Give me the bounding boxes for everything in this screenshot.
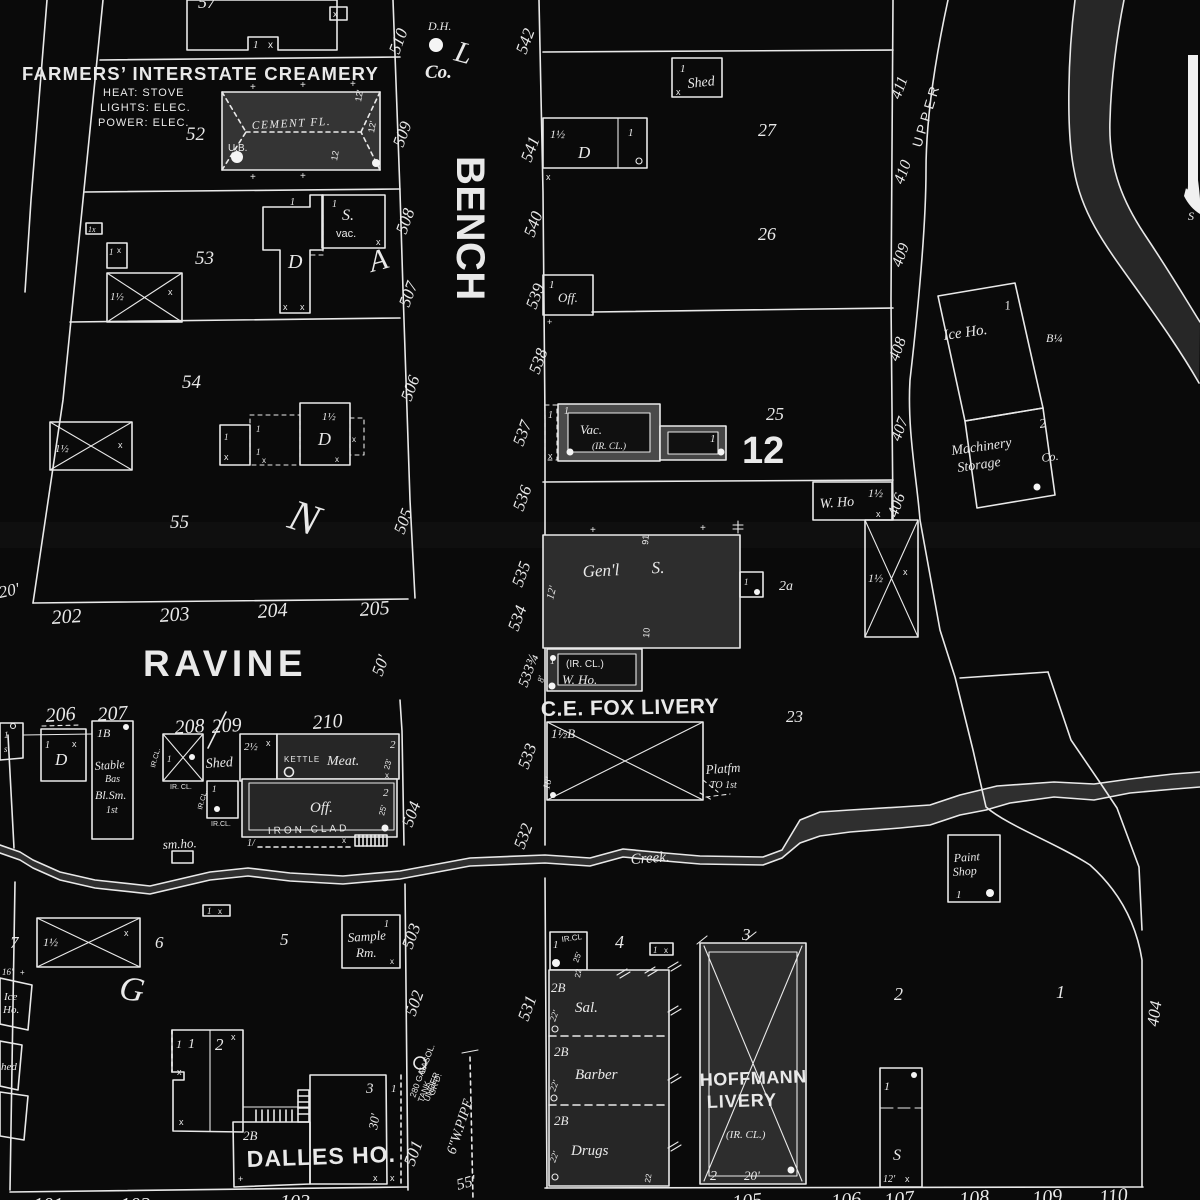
svg-text:1: 1 bbox=[109, 247, 114, 257]
svg-text:FARMERS’ INTERSTATE CREAMERY: FARMERS’ INTERSTATE CREAMERY bbox=[22, 63, 379, 84]
svg-text:5: 5 bbox=[280, 930, 289, 949]
svg-text:POWER: ELEC.: POWER: ELEC. bbox=[98, 117, 189, 129]
svg-text:1½: 1½ bbox=[550, 127, 565, 141]
svg-text:206: 206 bbox=[45, 703, 76, 727]
svg-text:HOFFMANN: HOFFMANN bbox=[699, 1066, 807, 1090]
svg-text:109: 109 bbox=[1031, 1185, 1063, 1200]
svg-text:2: 2 bbox=[390, 739, 396, 751]
svg-text:Sample: Sample bbox=[347, 927, 386, 945]
svg-text:+: + bbox=[700, 523, 706, 534]
svg-text:1: 1 bbox=[224, 432, 229, 442]
svg-text:Sal.: Sal. bbox=[575, 1000, 598, 1016]
svg-text:202: 202 bbox=[51, 605, 82, 629]
svg-text:Meat.: Meat. bbox=[326, 754, 359, 769]
svg-text:D: D bbox=[287, 251, 303, 273]
svg-text:x: x bbox=[664, 946, 668, 955]
svg-text:108: 108 bbox=[958, 1186, 990, 1200]
svg-text:3: 3 bbox=[365, 1081, 374, 1097]
svg-text:Co.: Co. bbox=[1040, 449, 1059, 465]
svg-text:404: 404 bbox=[1143, 999, 1165, 1027]
svg-text:204: 204 bbox=[257, 599, 288, 623]
svg-text:30': 30' bbox=[365, 1112, 383, 1131]
svg-text:x: x bbox=[676, 87, 681, 97]
svg-text:57: 57 bbox=[198, 0, 217, 12]
svg-text:1/: 1/ bbox=[247, 838, 256, 849]
svg-text:x: x bbox=[352, 435, 356, 444]
svg-text:55: 55 bbox=[170, 512, 189, 533]
svg-text:1: 1 bbox=[391, 1083, 397, 1095]
svg-text:+: + bbox=[300, 171, 306, 182]
svg-text:1: 1 bbox=[256, 447, 261, 457]
svg-text:x: x bbox=[266, 738, 271, 748]
svg-text:1½: 1½ bbox=[868, 571, 883, 585]
svg-text:+: + bbox=[350, 79, 356, 90]
svg-text:1: 1 bbox=[4, 730, 9, 740]
svg-text:x: x bbox=[905, 1174, 910, 1184]
svg-text:2B: 2B bbox=[551, 980, 566, 995]
svg-text:x: x bbox=[72, 739, 77, 749]
svg-text:LIGHTS: ELEC.: LIGHTS: ELEC. bbox=[100, 102, 191, 114]
svg-text:Rm.: Rm. bbox=[355, 945, 377, 960]
svg-text:101: 101 bbox=[33, 1194, 63, 1200]
svg-text:1: 1 bbox=[628, 127, 634, 139]
svg-text:x: x bbox=[283, 302, 288, 312]
svg-text:W. Ho: W. Ho bbox=[819, 495, 854, 512]
svg-text:1: 1 bbox=[710, 433, 716, 445]
svg-text:x: x bbox=[117, 246, 121, 255]
svg-text:x: x bbox=[342, 836, 346, 845]
svg-text:1: 1 bbox=[176, 1037, 182, 1051]
svg-text:+: + bbox=[300, 80, 306, 91]
svg-text:x: x bbox=[333, 9, 338, 19]
svg-text:1: 1 bbox=[553, 939, 559, 951]
svg-text:110: 110 bbox=[1098, 1184, 1129, 1200]
svg-text:107: 107 bbox=[883, 1187, 916, 1200]
svg-text:S: S bbox=[1188, 209, 1194, 223]
svg-text:12': 12' bbox=[883, 1174, 896, 1185]
svg-text:53: 53 bbox=[195, 248, 214, 269]
svg-text:1: 1 bbox=[207, 906, 212, 916]
svg-text:208: 208 bbox=[174, 715, 205, 739]
svg-text:Paint: Paint bbox=[952, 849, 981, 865]
svg-text:LIVERY: LIVERY bbox=[706, 1090, 777, 1112]
svg-text:+: + bbox=[238, 1174, 243, 1184]
svg-text:1: 1 bbox=[332, 199, 337, 210]
svg-text:W. Ho.: W. Ho. bbox=[562, 672, 597, 687]
svg-text:x: x bbox=[231, 1032, 236, 1042]
svg-text:x: x bbox=[177, 1067, 182, 1077]
svg-text:Co.: Co. bbox=[425, 62, 452, 83]
svg-text:Barber: Barber bbox=[575, 1067, 618, 1083]
svg-text:1B: 1B bbox=[97, 726, 111, 740]
svg-text:DALLES HO.: DALLES HO. bbox=[246, 1141, 396, 1172]
svg-text:+: + bbox=[590, 525, 596, 536]
svg-text:vac.: vac. bbox=[336, 228, 356, 240]
svg-text:x: x bbox=[903, 567, 908, 577]
svg-text:S.: S. bbox=[342, 207, 354, 224]
svg-text:s: s bbox=[4, 744, 8, 754]
svg-text:Vac.: Vac. bbox=[580, 422, 602, 437]
svg-text:23: 23 bbox=[786, 707, 803, 726]
svg-text:x: x bbox=[218, 907, 222, 916]
svg-text:x: x bbox=[168, 287, 173, 297]
svg-text:1: 1 bbox=[256, 424, 261, 434]
svg-text:2B: 2B bbox=[554, 1113, 569, 1128]
svg-text:1: 1 bbox=[548, 410, 553, 421]
svg-text:12: 12 bbox=[742, 430, 784, 472]
svg-text:1: 1 bbox=[167, 754, 172, 764]
svg-text:1st: 1st bbox=[106, 805, 118, 816]
svg-text:D: D bbox=[317, 429, 331, 449]
svg-text:Off.: Off. bbox=[310, 800, 333, 816]
svg-text:12': 12' bbox=[366, 120, 378, 134]
svg-text:10: 10 bbox=[641, 627, 652, 638]
svg-text:x: x bbox=[548, 451, 553, 461]
svg-text:1: 1 bbox=[45, 740, 50, 751]
svg-text:1½: 1½ bbox=[868, 486, 883, 500]
svg-text:1: 1 bbox=[653, 945, 658, 955]
svg-text:x: x bbox=[118, 440, 123, 450]
svg-text:+: + bbox=[20, 968, 25, 977]
svg-text:1½B: 1½B bbox=[551, 726, 575, 741]
svg-text:IR. CL.: IR. CL. bbox=[170, 784, 192, 791]
svg-text:1: 1 bbox=[956, 889, 962, 901]
svg-text:91: 91 bbox=[640, 534, 651, 545]
svg-text:1: 1 bbox=[884, 1079, 890, 1093]
svg-text:KETTLE: KETTLE bbox=[284, 755, 320, 764]
svg-text:205: 205 bbox=[359, 597, 390, 621]
svg-text:1½: 1½ bbox=[322, 411, 336, 423]
svg-text:RAVINE: RAVINE bbox=[143, 643, 307, 684]
svg-text:Shed: Shed bbox=[687, 74, 717, 92]
svg-text:2a: 2a bbox=[779, 579, 793, 594]
svg-text:1: 1 bbox=[212, 784, 217, 794]
svg-text:D: D bbox=[577, 143, 591, 162]
svg-text:203: 203 bbox=[159, 603, 190, 627]
svg-text:103: 103 bbox=[280, 1191, 310, 1200]
svg-text:210: 210 bbox=[312, 710, 343, 734]
svg-text:x: x bbox=[373, 1173, 378, 1183]
svg-text:TO 1st: TO 1st bbox=[710, 780, 737, 791]
svg-text:207: 207 bbox=[97, 702, 129, 726]
svg-text:Off.: Off. bbox=[558, 290, 578, 305]
svg-text:x: x bbox=[124, 928, 129, 938]
svg-text:1: 1 bbox=[384, 919, 389, 930]
svg-text:+: + bbox=[250, 172, 256, 183]
svg-text:D: D bbox=[54, 750, 68, 769]
svg-text:27: 27 bbox=[758, 120, 777, 140]
svg-text:x: x bbox=[546, 172, 551, 182]
svg-text:Platfm: Platfm bbox=[704, 760, 741, 777]
svg-text:x: x bbox=[262, 456, 266, 465]
svg-text:Shed: Shed bbox=[205, 755, 234, 772]
svg-text:1: 1 bbox=[290, 197, 295, 208]
svg-text:1: 1 bbox=[744, 577, 749, 587]
svg-text:1: 1 bbox=[549, 279, 555, 291]
svg-text:B¼: B¼ bbox=[1046, 331, 1062, 345]
svg-text:2B: 2B bbox=[554, 1044, 569, 1059]
svg-text:x: x bbox=[390, 1173, 395, 1183]
svg-text:1½: 1½ bbox=[55, 443, 69, 455]
svg-text:Bl.Sm.: Bl.Sm. bbox=[95, 788, 126, 802]
svg-text:102: 102 bbox=[120, 1194, 150, 1200]
svg-text:Creek.: Creek. bbox=[630, 849, 670, 868]
svg-text:sm.ho.: sm.ho. bbox=[162, 835, 197, 852]
svg-text:(IR. CL.): (IR. CL.) bbox=[592, 441, 626, 452]
svg-text:+: + bbox=[250, 82, 256, 93]
svg-text:x: x bbox=[300, 302, 305, 312]
svg-text:26: 26 bbox=[758, 224, 776, 244]
svg-text:2B: 2B bbox=[243, 1128, 258, 1143]
svg-text:3: 3 bbox=[741, 925, 751, 944]
svg-text:12: 12 bbox=[329, 150, 341, 162]
svg-text:105: 105 bbox=[731, 1189, 763, 1200]
svg-text:Bas: Bas bbox=[105, 774, 120, 785]
svg-text:BENCH: BENCH bbox=[448, 156, 492, 301]
svg-text:(IR. CL.): (IR. CL.) bbox=[566, 659, 604, 670]
svg-text:Stable: Stable bbox=[94, 757, 126, 773]
svg-text:hed: hed bbox=[1, 1061, 17, 1073]
svg-text:1½: 1½ bbox=[110, 291, 124, 303]
svg-text:HEAT: STOVE: HEAT: STOVE bbox=[103, 87, 185, 99]
svg-text:2: 2 bbox=[710, 1169, 717, 1184]
svg-text:4: 4 bbox=[615, 932, 624, 952]
svg-text:12': 12' bbox=[353, 89, 365, 103]
svg-text:1: 1 bbox=[680, 63, 686, 75]
svg-text:2½: 2½ bbox=[244, 741, 258, 753]
svg-text:Ice: Ice bbox=[3, 991, 18, 1003]
svg-text:x: x bbox=[179, 1117, 184, 1127]
svg-text:25: 25 bbox=[766, 404, 784, 424]
svg-text:2: 2 bbox=[894, 984, 903, 1004]
svg-text:16': 16' bbox=[2, 967, 14, 977]
svg-text:Ho.: Ho. bbox=[2, 1004, 19, 1016]
svg-text:54: 54 bbox=[182, 372, 202, 393]
svg-text:IR.CL.: IR.CL. bbox=[211, 821, 231, 828]
svg-text:52: 52 bbox=[186, 124, 206, 145]
svg-text:1: 1 bbox=[1056, 982, 1065, 1002]
svg-text:x: x bbox=[876, 509, 881, 519]
svg-text:1: 1 bbox=[253, 39, 259, 51]
svg-text:S: S bbox=[893, 1147, 901, 1164]
svg-text:+: + bbox=[547, 317, 552, 327]
svg-text:x: x bbox=[224, 452, 229, 462]
svg-text:20': 20' bbox=[744, 1168, 760, 1183]
svg-text:1: 1 bbox=[188, 1037, 195, 1052]
svg-text:1½: 1½ bbox=[43, 935, 58, 949]
svg-text:2: 2 bbox=[383, 787, 389, 799]
svg-text:(IR. CL.): (IR. CL.) bbox=[726, 1129, 766, 1141]
svg-text:x: x bbox=[335, 455, 339, 464]
svg-text:1x: 1x bbox=[88, 225, 96, 234]
svg-text:1: 1 bbox=[564, 406, 569, 417]
svg-text:6: 6 bbox=[155, 933, 164, 952]
svg-text:Shop: Shop bbox=[952, 863, 977, 879]
svg-text:C.E. FOX LIVERY: C.E. FOX LIVERY bbox=[541, 695, 720, 721]
svg-text:106: 106 bbox=[830, 1188, 862, 1200]
svg-text:2: 2 bbox=[215, 1035, 224, 1054]
svg-text:x: x bbox=[268, 40, 273, 51]
svg-text:Drugs: Drugs bbox=[570, 1143, 609, 1159]
svg-text:D.H.: D.H. bbox=[427, 19, 451, 33]
svg-text:x: x bbox=[390, 957, 394, 966]
